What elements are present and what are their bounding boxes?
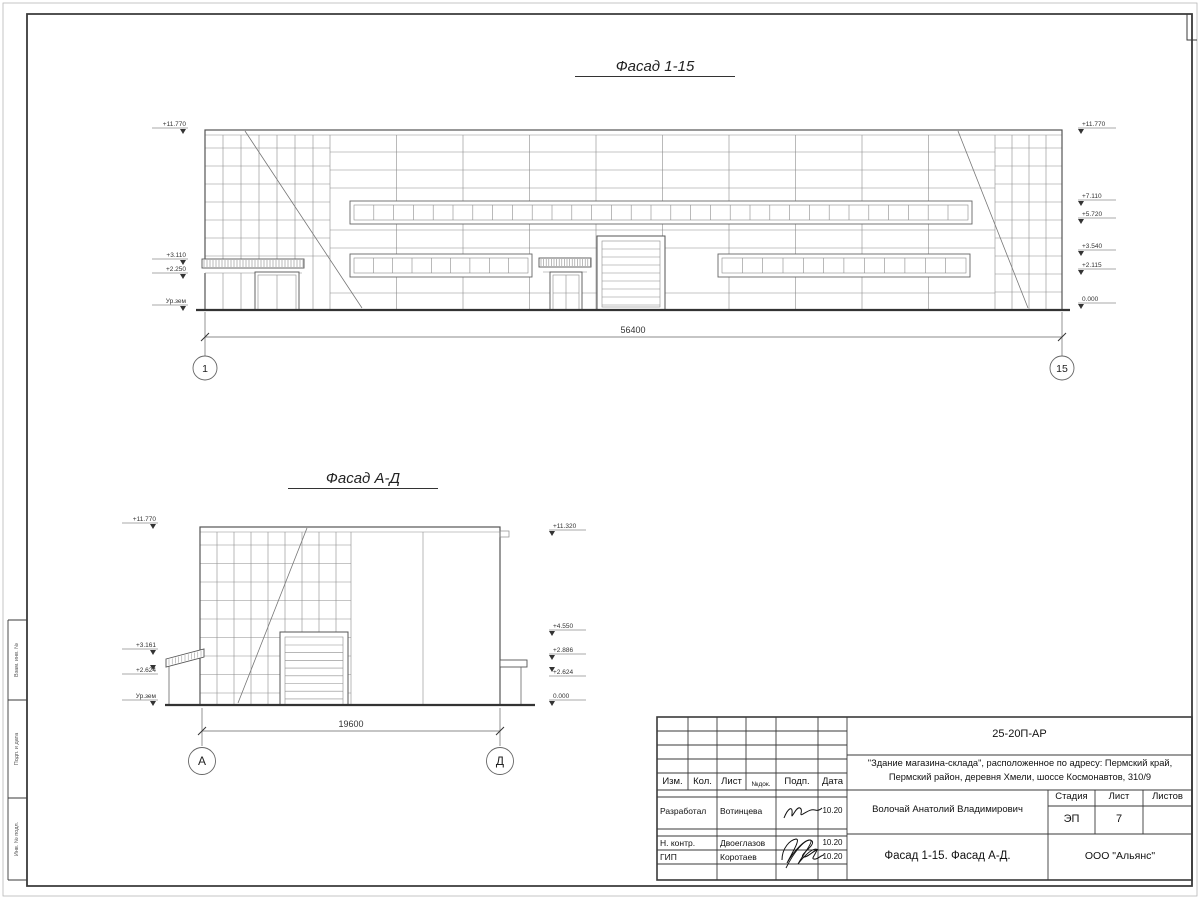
level-mark: +2.250 — [166, 266, 186, 273]
axis-bubble-label-a: А — [198, 754, 206, 768]
level-mark: 0.000 — [553, 693, 570, 700]
drawing-sheet: +11.770+3.110+2.250Ур.зем+11.770+7.110+5… — [0, 0, 1200, 900]
axis-bubble-label-d: Д — [496, 754, 504, 768]
col-header-kol: Кол. — [688, 777, 717, 788]
level-mark: +3.540 — [1082, 243, 1102, 250]
role-nkontr: Н. контр. — [660, 839, 717, 849]
stage-value: ЭП — [1048, 813, 1095, 825]
date-razrabotal: 10.20 — [818, 807, 847, 816]
project-address-line2: Пермский район, деревня Хмели, шоссе Кос… — [850, 772, 1190, 782]
name-korotaev: Коротаев — [720, 853, 775, 863]
level-mark: Ур.зем — [136, 693, 157, 700]
name-dvoeglazov: Двоеглазов — [720, 839, 776, 849]
level-mark: +11.320 — [553, 523, 577, 530]
level-mark: +11.770 — [133, 516, 157, 523]
level-mark: +11.770 — [163, 121, 187, 128]
sheets-label: Листов — [1143, 792, 1192, 803]
project-address-line1: "Здание магазина-склада", расположенное … — [850, 758, 1190, 768]
col-header-list: Лист — [717, 777, 746, 788]
sheet-label: Лист — [1095, 792, 1143, 803]
date-nkontr: 10.20 — [818, 839, 847, 848]
level-mark: +7.110 — [1082, 193, 1102, 200]
level-mark: +2.624 — [136, 667, 156, 674]
margin-label-inv: Инв. № подл. — [14, 821, 20, 856]
dimension-value-f2: 19600 — [338, 719, 363, 729]
margin-label-podp: Подп. и дата — [14, 732, 20, 765]
drawing-title: Фасад 1-15. Фасад А-Д. — [849, 850, 1046, 863]
level-mark: +2.886 — [553, 647, 573, 654]
level-mark: +11.770 — [1082, 121, 1106, 128]
col-header-data: Дата — [818, 777, 847, 788]
author-full-name: Волочай Анатолий Владимирович — [849, 805, 1046, 816]
col-header-ndok: №док. — [746, 781, 776, 788]
axis-bubble-label-15: 15 — [1056, 363, 1068, 375]
dimension-value-f1: 56400 — [620, 325, 645, 335]
level-mark: +2.624 — [553, 669, 573, 676]
doc-code: 25-20П-АР — [847, 728, 1192, 740]
col-header-izm: Изм. — [657, 777, 688, 788]
name-votintseva: Вотинцева — [720, 807, 775, 817]
level-mark: 0.000 — [1082, 296, 1099, 303]
level-mark: +5.720 — [1082, 211, 1102, 218]
level-mark: +3.161 — [136, 642, 156, 649]
role-razrabotal: Разработал — [660, 807, 717, 817]
role-gip: ГИП — [660, 853, 717, 863]
company-name: ООО "Альянс" — [1050, 851, 1190, 863]
level-mark: +3.110 — [166, 252, 186, 259]
sheet-number: 7 — [1095, 813, 1143, 825]
level-mark: +4.550 — [553, 623, 573, 630]
stage-label: Стадия — [1048, 792, 1095, 803]
date-gip: 10.20 — [818, 853, 847, 862]
facade-1-15-title: Фасад 1-15 — [575, 58, 735, 77]
margin-label-vzam: Взам. инв. № — [14, 643, 20, 677]
level-mark: Ур.зем — [166, 298, 187, 305]
axis-bubble-label-1: 1 — [202, 363, 208, 375]
facade-ad-title: Фасад А-Д — [288, 470, 438, 489]
level-mark: +2.115 — [1082, 262, 1102, 269]
col-header-podp: Подп. — [776, 777, 818, 788]
